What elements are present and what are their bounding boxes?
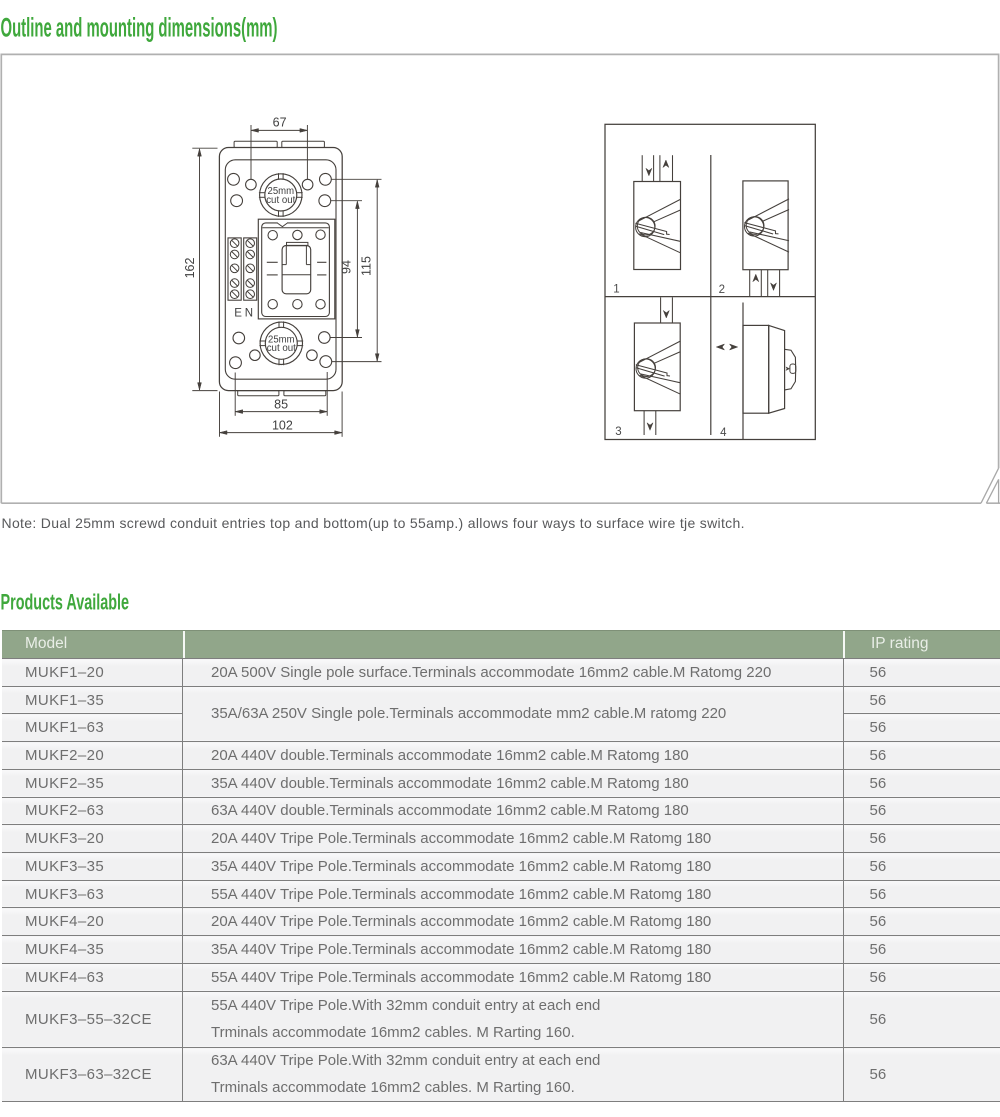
svg-text:E: E [234, 307, 242, 319]
svg-text:cut out: cut out [267, 343, 296, 354]
svg-text:1: 1 [613, 283, 619, 295]
svg-text:Note: Dual 25mm screwd conduit: Note: Dual 25mm screwd conduit entries t… [2, 515, 745, 531]
svg-text:94: 94 [340, 260, 354, 274]
svg-text:2: 2 [719, 284, 725, 296]
svg-text:cut out: cut out [266, 195, 295, 206]
svg-text:162: 162 [183, 258, 197, 279]
svg-text:67: 67 [273, 116, 287, 130]
svg-text:3: 3 [615, 426, 621, 438]
svg-text:85: 85 [274, 397, 288, 411]
svg-text:102: 102 [272, 419, 293, 433]
svg-text:Outline and mounting dimension: Outline and mounting dimensions(mm) [1, 12, 278, 42]
svg-text:N: N [245, 307, 253, 319]
svg-text:4: 4 [720, 427, 727, 439]
svg-text:Products Available: Products Available [1, 589, 130, 614]
svg-text:115: 115 [359, 256, 373, 276]
